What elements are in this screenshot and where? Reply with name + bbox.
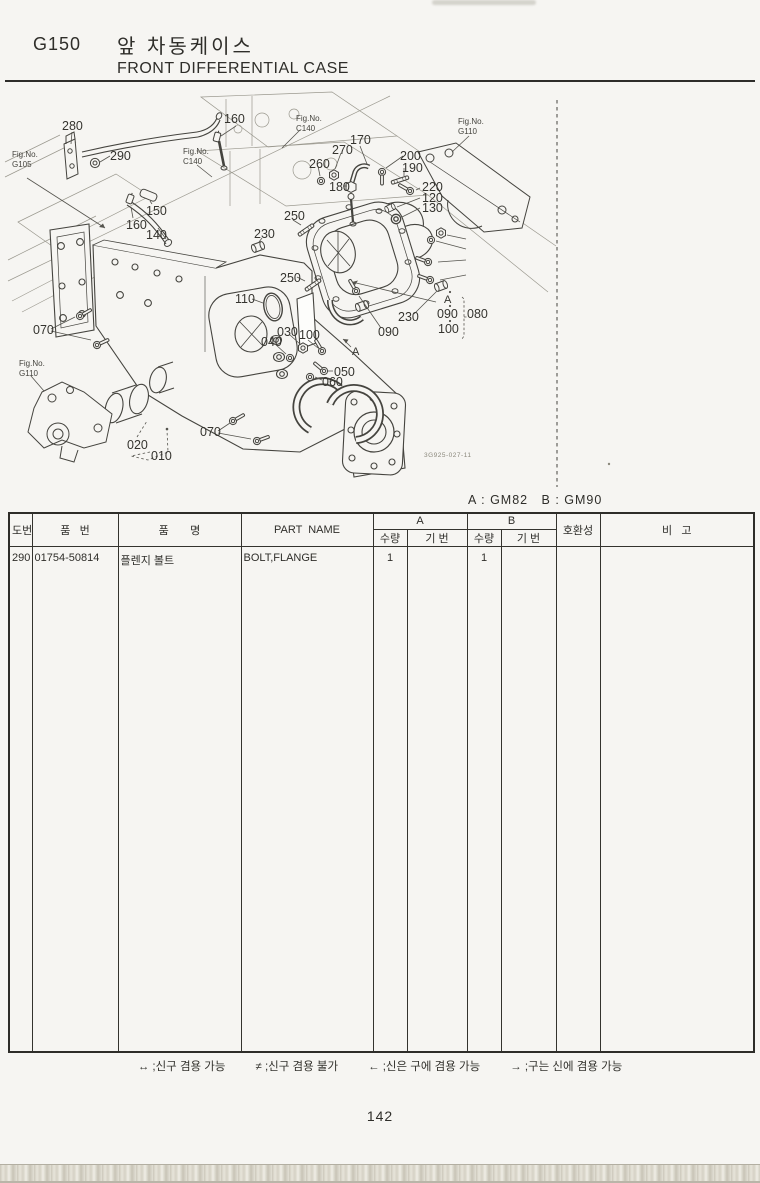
part-callout-010: 010 (151, 450, 172, 463)
part-callout-080: 080 (467, 308, 488, 321)
cell-part-name: BOLT,FLANGE (241, 546, 373, 1052)
part-callout-190: 190 (402, 162, 423, 175)
parts-table: 도번 품 번 품 명 PART NAME A B 호환성 비 고 수량 기 번 … (8, 512, 755, 1053)
part-callout-260: 260 (309, 158, 330, 171)
cell-compat (556, 546, 600, 1052)
part-callout-140: 140 (146, 229, 167, 242)
fig-ref-C140: Fig.No. C140 (296, 114, 322, 134)
part-callout-170: 170 (350, 134, 371, 147)
drawing-number: 3G925-027-11 (424, 452, 471, 459)
part-callout-100: 100 (438, 323, 459, 336)
part-callout-070: 070 (33, 324, 54, 337)
part-callout-090: 090 (378, 326, 399, 339)
part-callout-160: 160 (126, 219, 147, 232)
part-callout-150: 150 (146, 205, 167, 218)
fig-ref-G110: Fig.No. G110 (19, 359, 45, 379)
legend-item-3: → ;구는 신에 겸용 가능 (510, 1058, 622, 1074)
col-header-no: 도번 (9, 513, 32, 546)
col-header-remarks: 비 고 (600, 513, 754, 546)
part-callout-020: 020 (127, 439, 148, 452)
col-header-part-no: 품 번 (32, 513, 118, 546)
col-group-b: B (467, 513, 556, 529)
cell-name-ko: 플렌지 볼트 (118, 546, 241, 1052)
col-header-serial-b: 기 번 (501, 529, 556, 546)
col-header-serial-a: 기 번 (407, 529, 467, 546)
part-callout-250: 250 (280, 272, 301, 285)
fig-ref-C140: Fig.No. C140 (183, 147, 209, 167)
part-callout-070: 070 (200, 426, 221, 439)
col-header-qty-b: 수량 (467, 529, 501, 546)
cell-serial-b (501, 546, 556, 1052)
part-callout-290: 290 (110, 150, 131, 163)
model-variant-note: A : GM82 B : GM90 (468, 493, 602, 507)
part-callout-060: 060 (322, 376, 343, 389)
part-callout-090: 090 (437, 308, 458, 321)
cell-qty-b: 1 (467, 546, 501, 1052)
parts-drawing-art (0, 0, 760, 500)
part-callout-230: 230 (398, 311, 419, 324)
fig-ref-G110: Fig.No. G110 (458, 117, 484, 137)
cell-no: 290 (9, 546, 32, 1052)
part-callout-250: 250 (284, 210, 305, 223)
col-header-qty-a: 수량 (373, 529, 407, 546)
legend-item-2: ← ;신은 구에 겸용 가능 (368, 1058, 480, 1074)
legend-item-1: ≠ ;신구 겸용 불가 (255, 1058, 338, 1074)
part-row: 290 01754-50814 플렌지 볼트 BOLT,FLANGE 1 1 (9, 546, 754, 1052)
cell-part-no: 01754-50814 (32, 546, 118, 1052)
col-header-part-name: PART NAME (241, 513, 373, 546)
cell-qty-a: 1 (373, 546, 407, 1052)
part-callout-A: A (352, 347, 359, 358)
compatibility-legend: ↔ ;신구 겸용 가능≠ ;신구 겸용 불가← ;신은 구에 겸용 가능→ ;구… (0, 1058, 760, 1074)
part-callout-280: 280 (62, 120, 83, 133)
part-callout-230: 230 (254, 228, 275, 241)
col-header-name-ko: 품 명 (118, 513, 241, 546)
col-group-a: A (373, 513, 467, 529)
part-callout-110: 110 (235, 293, 255, 306)
part-callout-100: 100 (299, 329, 320, 342)
part-callout-040: 040 (261, 336, 282, 349)
part-callout-A: A (444, 295, 451, 306)
part-callout-180: 180 (329, 181, 350, 194)
part-callout-160: 160 (224, 113, 245, 126)
cell-serial-a (407, 546, 467, 1052)
exploded-parts-diagram: 3G925-027-11 280290160150160140170270260… (0, 0, 760, 500)
part-callout-130: 130 (422, 202, 443, 215)
fig-ref-G105: Fig.No. G105 (12, 150, 38, 170)
legend-item-0: ↔ ;신구 겸용 가능 (138, 1058, 226, 1074)
page-edge-scan-band (0, 1164, 760, 1183)
part-callout-270: 270 (332, 144, 353, 157)
col-header-compat: 호환성 (556, 513, 600, 546)
cell-remarks (600, 546, 754, 1052)
page-number: 142 (0, 1108, 760, 1124)
